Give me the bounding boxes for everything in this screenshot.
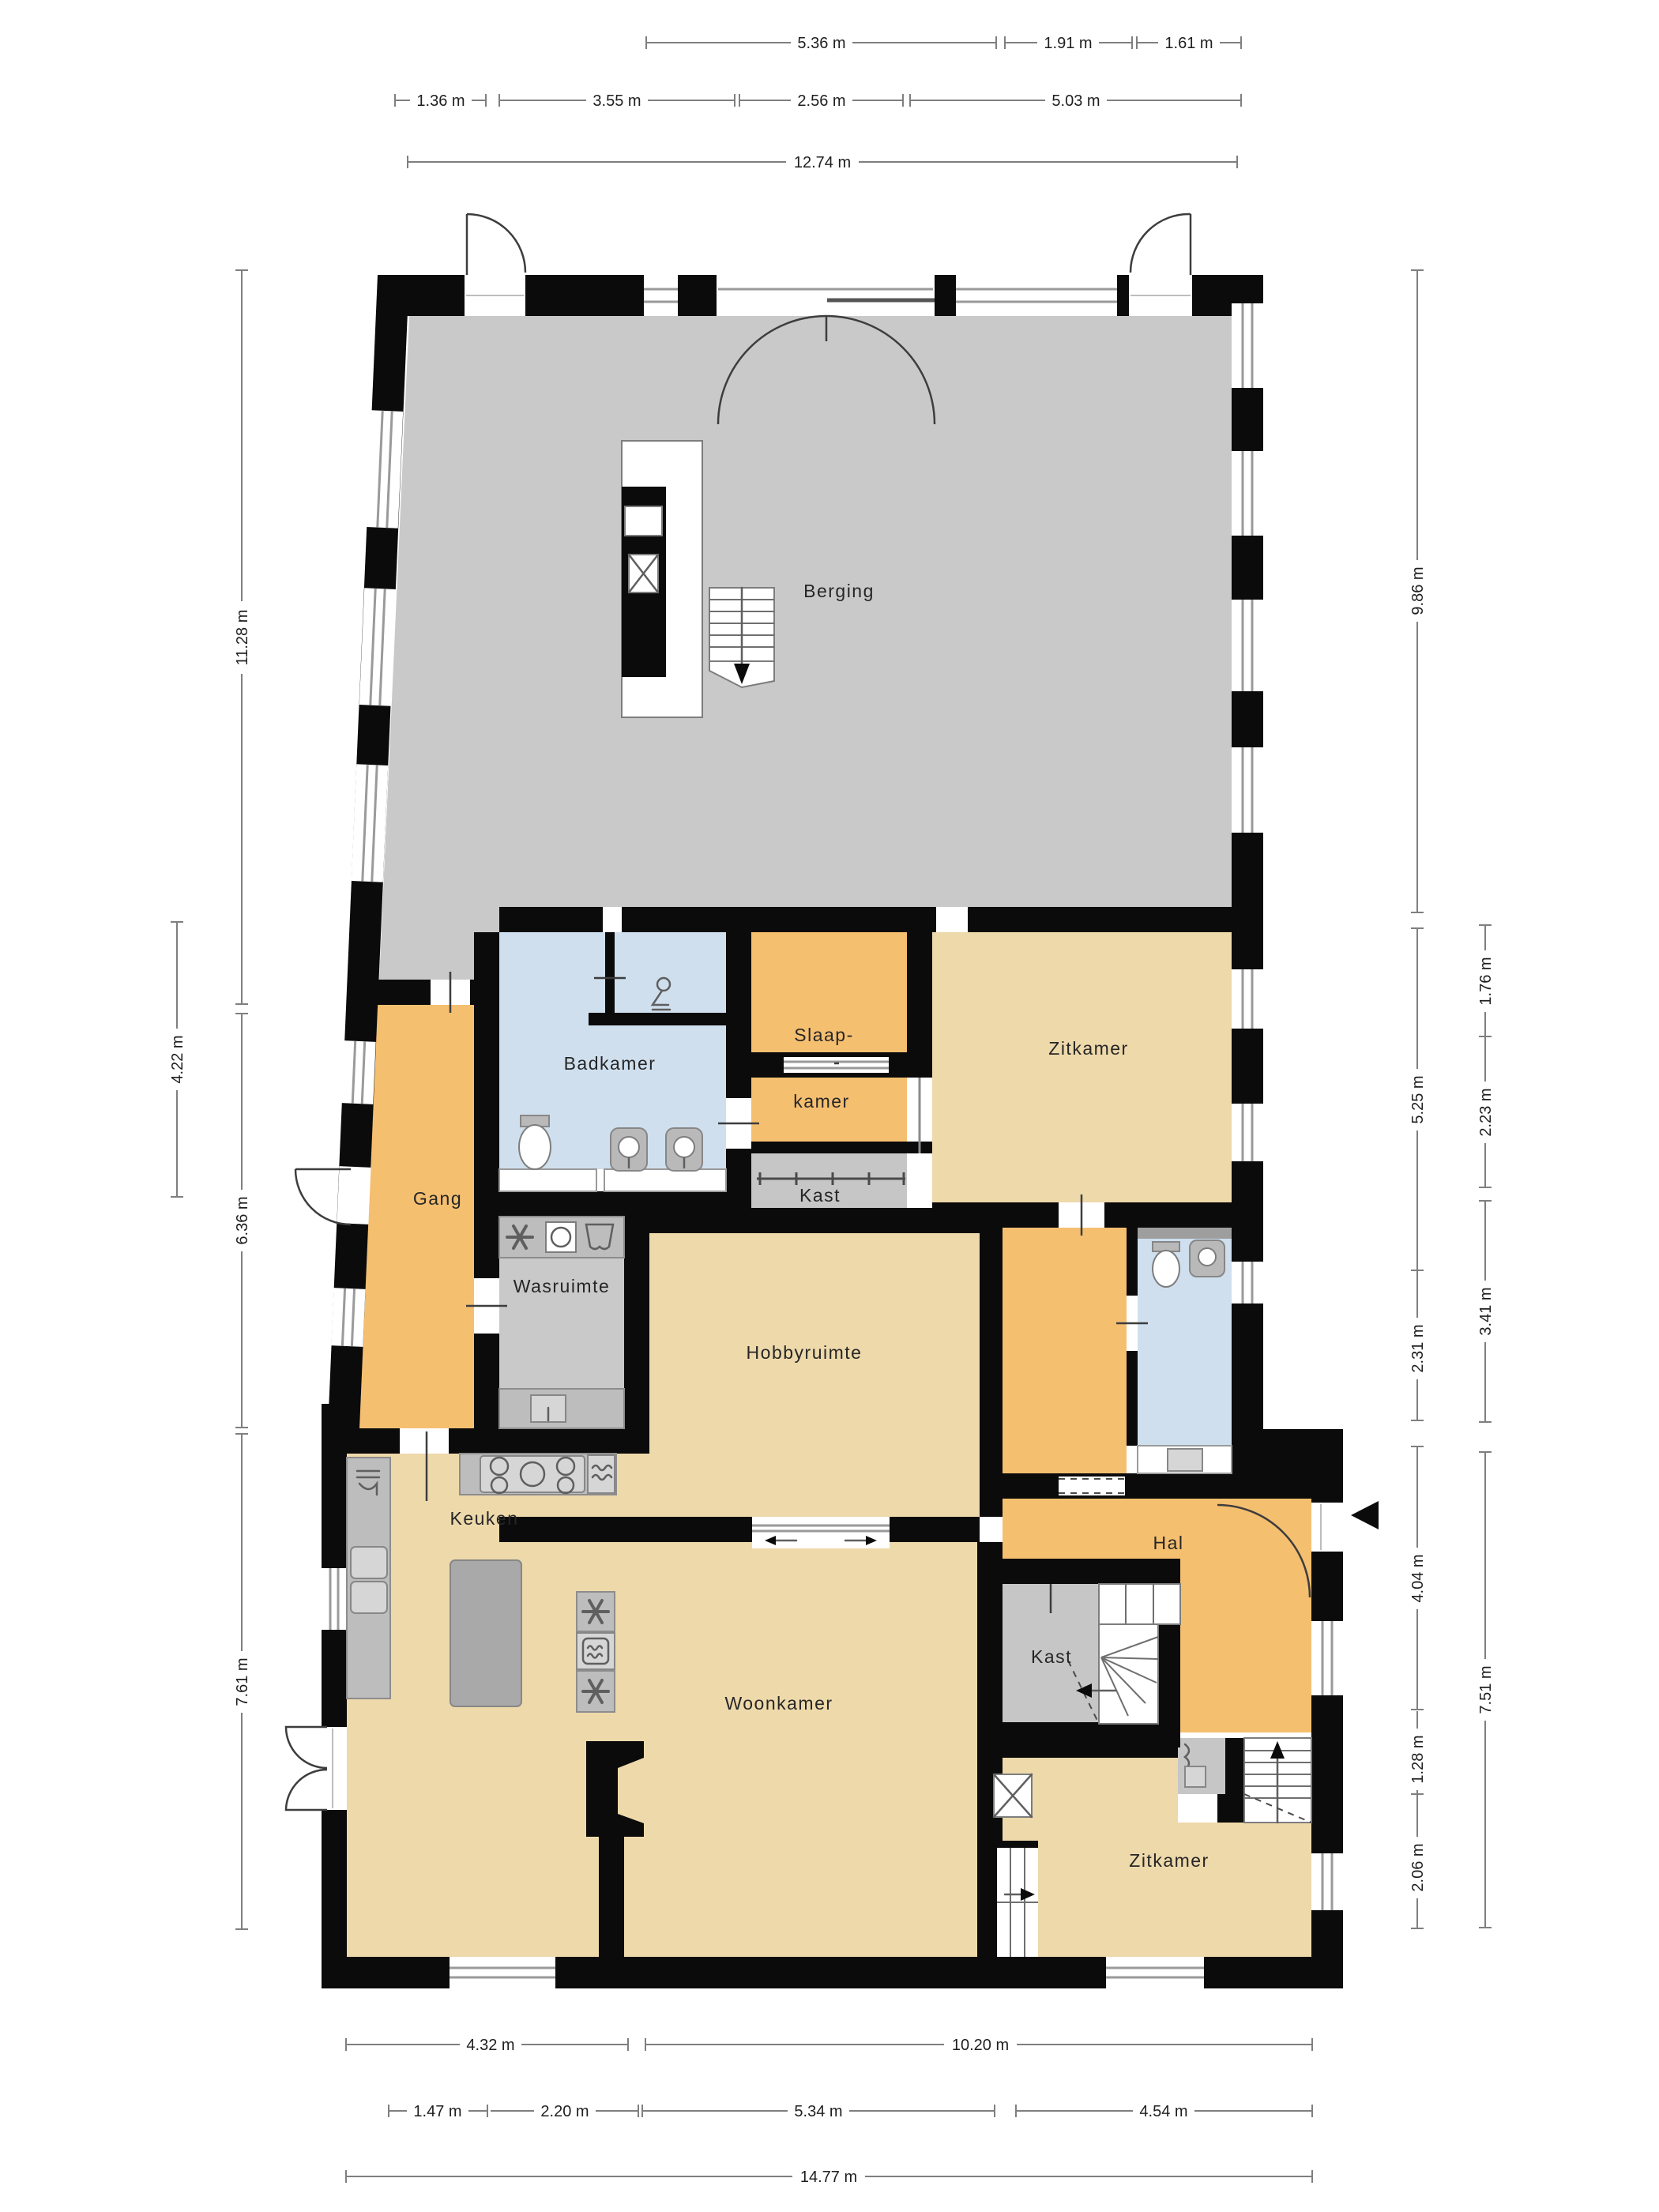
label-zitkamer-onder: Zitkamer — [1129, 1850, 1209, 1871]
label-keuken: Keuken — [450, 1508, 518, 1529]
svg-text:2.56 m: 2.56 m — [797, 92, 845, 110]
floorplan-drawing: Berging Badkamer Slaap- kamer Zitkamer K… — [0, 0, 1659, 2212]
window — [450, 1957, 555, 1988]
label-hobbyruimte: Hobbyruimte — [747, 1342, 863, 1363]
sliding-door — [752, 1517, 890, 1548]
label-woonkamer: Woonkamer — [724, 1693, 833, 1714]
door-gap — [603, 907, 622, 932]
dim-bottom: 10.20 m — [645, 2035, 1312, 2054]
dim-left: 6.36 m — [232, 1014, 251, 1428]
entrance-arrow-icon — [1351, 1501, 1379, 1529]
floorplan-page: Berging Badkamer Slaap- kamer Zitkamer K… — [0, 0, 1659, 2212]
svg-text:3.55 m: 3.55 m — [592, 92, 641, 110]
svg-text:7.51 m: 7.51 m — [1477, 1665, 1495, 1714]
dim-top: 1.61 m — [1137, 33, 1241, 52]
toilet-icon — [1153, 1242, 1179, 1287]
svg-text:4.22 m: 4.22 m — [169, 1035, 186, 1083]
svg-text:9.86 m: 9.86 m — [1409, 566, 1427, 615]
door-gap — [936, 907, 968, 932]
window — [1232, 600, 1263, 691]
dim-right: 5.25 m — [1408, 928, 1427, 1270]
berging-stairs — [709, 588, 774, 687]
french-doors — [286, 1727, 347, 1810]
room-gang — [359, 1005, 474, 1428]
dim-right: 1.28 m — [1408, 1711, 1427, 1794]
dim-right: 2.06 m — [1408, 1794, 1427, 1928]
kitchen-island — [450, 1560, 521, 1706]
window — [1311, 1853, 1343, 1910]
exterior-door — [1129, 214, 1192, 316]
dim-right: 3.41 m — [1476, 1201, 1495, 1422]
svg-text:5.34 m: 5.34 m — [794, 2103, 842, 2120]
washbasin — [1168, 1449, 1202, 1471]
oven-icon — [588, 1455, 615, 1493]
svg-text:3.41 m: 3.41 m — [1477, 1287, 1495, 1335]
dim-bottom: 2.20 m — [491, 2101, 638, 2120]
step-passage — [997, 1841, 1038, 1957]
dim-right: 1.76 m — [1476, 925, 1495, 1036]
window — [1106, 1957, 1204, 1988]
svg-text:11.28 m: 11.28 m — [234, 610, 251, 666]
dim-bottom: 4.54 m — [1016, 2101, 1312, 2120]
svg-text:5.03 m: 5.03 m — [1051, 92, 1100, 110]
chimney-box — [994, 1774, 1032, 1817]
dim-bottom: 1.47 m — [389, 2101, 487, 2120]
toilet-icon — [519, 1115, 551, 1169]
dim-top: 1.36 m — [395, 91, 486, 110]
svg-text:2.31 m: 2.31 m — [1409, 1324, 1427, 1372]
svg-text:7.61 m: 7.61 m — [234, 1657, 251, 1706]
label-kast-boven: Kast — [799, 1185, 841, 1206]
label-kast-onder: Kast — [1031, 1646, 1072, 1667]
label-wasruimte: Wasruimte — [513, 1276, 611, 1296]
window — [331, 1288, 365, 1347]
room-berging — [379, 316, 1232, 980]
dim-top: 12.74 m — [408, 152, 1237, 171]
svg-text:2.20 m: 2.20 m — [540, 2103, 589, 2120]
dim-right: 2.31 m — [1408, 1270, 1427, 1420]
window — [1232, 1104, 1263, 1161]
svg-text:1.47 m: 1.47 m — [413, 2103, 461, 2120]
sink-icon — [1190, 1240, 1224, 1277]
dim-top: 5.03 m — [910, 91, 1241, 110]
dim-left: 4.22 m — [167, 922, 186, 1197]
shower-box-icon — [629, 555, 658, 592]
svg-text:1.61 m: 1.61 m — [1164, 35, 1213, 52]
dim-bottom: 14.77 m — [346, 2167, 1312, 2186]
svg-text:1.28 m: 1.28 m — [1409, 1735, 1427, 1783]
dim-bottom: 5.34 m — [642, 2101, 995, 2120]
label-berging: Berging — [803, 581, 875, 601]
svg-text:4.04 m: 4.04 m — [1409, 1554, 1427, 1602]
dashed-doorway — [1059, 1477, 1125, 1495]
dim-left: 11.28 m — [232, 270, 251, 1004]
sink-icon — [666, 1128, 702, 1171]
label-slaapkamer-2: kamer — [793, 1091, 849, 1112]
label-hal: Hal — [1153, 1533, 1183, 1553]
bath-counter — [499, 1169, 596, 1191]
dim-right: 4.04 m — [1408, 1446, 1427, 1710]
dim-bottom: 4.32 m — [346, 2035, 628, 2054]
room-zitkamer-boven — [932, 932, 1232, 1202]
room-vestibule — [1003, 1228, 1127, 1473]
bath-counter — [604, 1169, 726, 1191]
dim-top: 5.36 m — [646, 33, 996, 52]
label-badkamer: Badkamer — [564, 1053, 656, 1074]
stove-icon — [480, 1456, 585, 1493]
dim-top: 3.55 m — [499, 91, 735, 110]
window — [644, 275, 678, 316]
window — [1232, 969, 1263, 1029]
svg-text:14.77 m: 14.77 m — [800, 2169, 857, 2186]
dim-top: 2.56 m — [739, 91, 903, 110]
svg-text:5.25 m: 5.25 m — [1409, 1075, 1427, 1123]
svg-text:6.36 m: 6.36 m — [234, 1196, 251, 1244]
dim-right: 2.23 m — [1476, 1036, 1495, 1187]
svg-text:4.54 m: 4.54 m — [1139, 2103, 1187, 2120]
svg-text:1.91 m: 1.91 m — [1044, 35, 1092, 52]
dim-right: 7.51 m — [1476, 1452, 1495, 1928]
window — [367, 410, 403, 529]
sink-icon — [611, 1128, 647, 1171]
window — [956, 275, 1117, 316]
svg-text:2.06 m: 2.06 m — [1409, 1843, 1427, 1891]
window — [322, 1568, 347, 1630]
svg-text:12.74 m: 12.74 m — [794, 154, 851, 171]
window — [359, 588, 396, 706]
svg-text:5.36 m: 5.36 m — [797, 35, 845, 52]
dim-left: 7.61 m — [232, 1434, 251, 1929]
label-gang: Gang — [413, 1188, 462, 1209]
window — [352, 764, 388, 882]
window — [1232, 451, 1263, 536]
sliding-door — [784, 1057, 889, 1073]
window — [1311, 1621, 1343, 1695]
exterior-door — [465, 214, 525, 316]
svg-text:10.20 m: 10.20 m — [952, 2037, 1009, 2054]
label-slaapkamer-1: Slaap- — [794, 1025, 853, 1045]
svg-text:1.76 m: 1.76 m — [1477, 957, 1495, 1005]
washing-machine-icon — [546, 1222, 576, 1252]
dim-right: 9.86 m — [1408, 270, 1427, 912]
window — [341, 1040, 375, 1104]
window — [1232, 303, 1263, 388]
svg-text:2.23 m: 2.23 m — [1477, 1088, 1495, 1136]
dim-top: 1.91 m — [1005, 33, 1132, 52]
svg-text:4.32 m: 4.32 m — [466, 2037, 514, 2054]
svg-text:1.36 m: 1.36 m — [416, 92, 465, 110]
straight-stairs — [1244, 1738, 1311, 1823]
exterior-door — [337, 1166, 371, 1224]
appliance-column — [577, 1592, 615, 1712]
label-zitkamer-boven: Zitkamer — [1048, 1038, 1128, 1059]
window — [1232, 747, 1263, 833]
window — [1232, 1262, 1263, 1303]
